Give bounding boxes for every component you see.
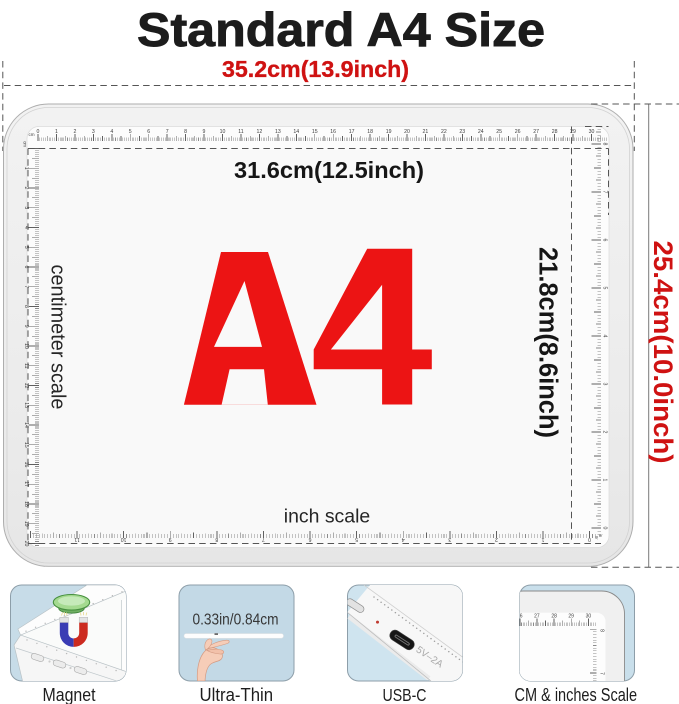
svg-text:USB-C: USB-C [383, 685, 427, 704]
svg-text:0: 0 [602, 527, 608, 530]
svg-text:31.6cm(12.5inch): 31.6cm(12.5inch) [234, 157, 424, 183]
svg-text:20: 20 [404, 129, 410, 135]
svg-text:13: 13 [275, 129, 281, 135]
svg-text:15: 15 [312, 129, 318, 135]
svg-text:11: 11 [238, 129, 243, 135]
svg-text:23: 23 [459, 129, 465, 135]
svg-text:11: 11 [74, 536, 79, 542]
svg-text:30: 30 [589, 129, 595, 135]
svg-text:4: 4 [402, 536, 405, 542]
svg-text:21: 21 [423, 129, 429, 135]
svg-text:26: 26 [515, 129, 521, 135]
svg-text:28: 28 [551, 614, 557, 620]
svg-text:Standard A4 Size: Standard A4 Size [137, 3, 545, 56]
svg-text:7: 7 [262, 536, 265, 542]
svg-text:29: 29 [570, 129, 576, 135]
svg-text:7: 7 [166, 129, 169, 135]
svg-text:8: 8 [23, 305, 29, 308]
svg-text:5: 5 [129, 129, 132, 135]
svg-text:0: 0 [37, 129, 40, 135]
svg-text:12: 12 [257, 129, 263, 135]
svg-text:1: 1 [602, 479, 608, 482]
svg-text:25: 25 [496, 129, 502, 135]
svg-text:10: 10 [121, 536, 127, 542]
svg-text:6: 6 [147, 129, 150, 135]
svg-text:9: 9 [169, 536, 172, 542]
svg-text:21.8cm(8.6inch): 21.8cm(8.6inch) [534, 247, 562, 438]
svg-text:6: 6 [602, 239, 608, 242]
svg-text:4: 4 [602, 335, 608, 338]
svg-text:9: 9 [203, 129, 206, 135]
svg-text:30: 30 [586, 614, 592, 620]
svg-text:2: 2 [495, 536, 498, 542]
svg-text:1: 1 [23, 167, 29, 170]
svg-text:22: 22 [441, 129, 447, 135]
svg-text:6: 6 [308, 536, 311, 542]
svg-text:7: 7 [602, 191, 608, 194]
svg-text:Ultra-Thin: Ultra-Thin [200, 685, 274, 704]
svg-text:27: 27 [533, 129, 539, 135]
svg-text:cm: cm [28, 132, 34, 137]
svg-text:3: 3 [448, 536, 451, 542]
svg-text:18: 18 [367, 129, 373, 135]
svg-text:cm: cm [23, 141, 28, 147]
svg-text:in: in [598, 534, 603, 538]
svg-text:3: 3 [602, 383, 608, 386]
svg-text:5: 5 [602, 287, 608, 290]
svg-text:2: 2 [73, 129, 76, 135]
svg-text:17: 17 [349, 129, 355, 135]
svg-text:25.4cm(10.0inch): 25.4cm(10.0inch) [648, 241, 678, 464]
svg-text:8: 8 [599, 629, 605, 632]
svg-text:16: 16 [330, 129, 336, 135]
svg-text:29: 29 [568, 614, 574, 620]
svg-text:5: 5 [355, 536, 358, 542]
svg-text:in: in [594, 535, 598, 540]
svg-text:3: 3 [92, 129, 95, 135]
svg-text:8: 8 [184, 129, 187, 135]
svg-text:1: 1 [55, 129, 58, 135]
svg-text:0.33in/0.84cm: 0.33in/0.84cm [193, 612, 279, 629]
svg-text:19: 19 [386, 129, 392, 135]
svg-text:CM & inches Scale: CM & inches Scale [515, 685, 638, 704]
svg-text:8: 8 [602, 143, 608, 146]
svg-text:Magnet: Magnet [43, 685, 96, 704]
svg-text:1: 1 [541, 536, 544, 542]
svg-text:0: 0 [588, 536, 591, 542]
svg-text:10: 10 [220, 129, 226, 135]
svg-text:centimeter scale: centimeter scale [47, 265, 69, 410]
svg-text:inch scale: inch scale [284, 506, 371, 528]
svg-text:4: 4 [110, 129, 113, 135]
svg-text:28: 28 [552, 129, 558, 135]
svg-text:35.2cm(13.9inch): 35.2cm(13.9inch) [222, 56, 409, 82]
svg-text:14: 14 [293, 129, 299, 135]
svg-text:2: 2 [602, 431, 608, 434]
svg-text:24: 24 [478, 129, 484, 135]
svg-text:8: 8 [215, 536, 218, 542]
svg-text:7: 7 [599, 672, 605, 675]
svg-text:27: 27 [534, 614, 540, 620]
